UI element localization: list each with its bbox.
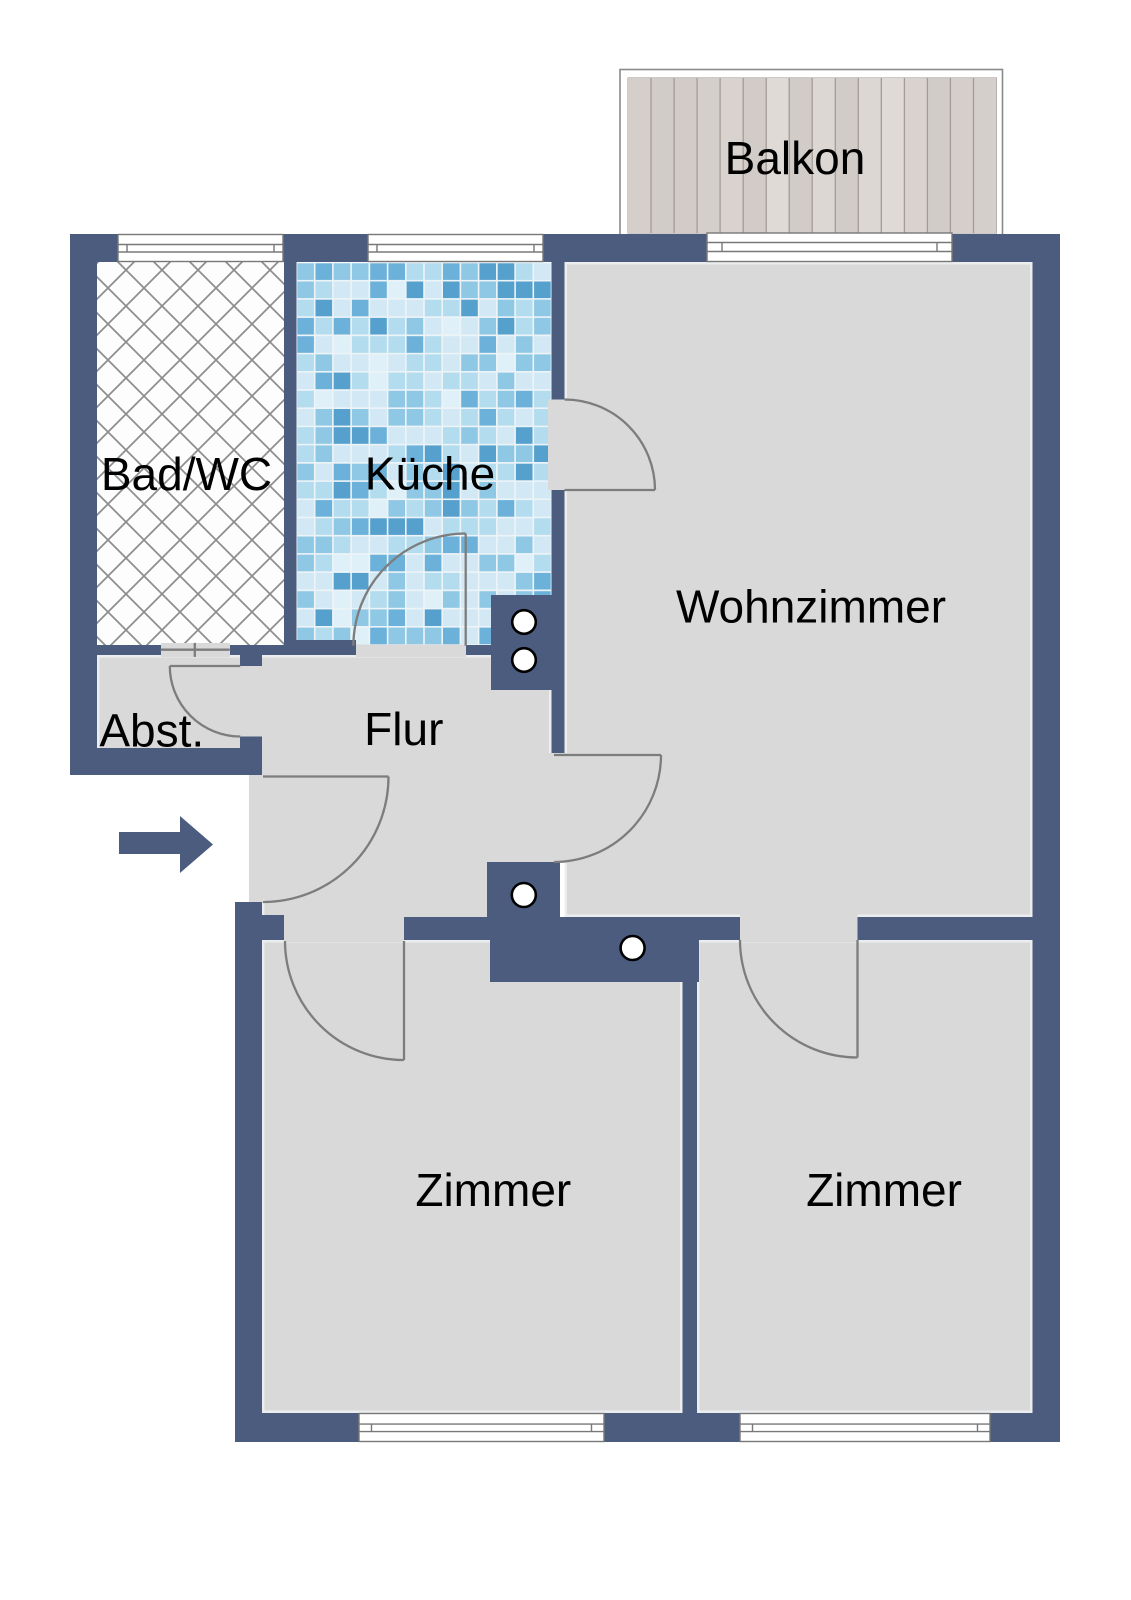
svg-text:Küche: Küche [365,448,495,500]
svg-text:Bad/WC: Bad/WC [101,448,272,500]
svg-text:Flur: Flur [364,703,443,755]
svg-text:Zimmer: Zimmer [415,1164,571,1216]
svg-text:Balkon: Balkon [725,132,866,184]
svg-text:Zimmer: Zimmer [806,1164,962,1216]
svg-text:Wohnzimmer: Wohnzimmer [676,581,946,633]
svg-text:Abst.: Abst. [99,705,204,757]
